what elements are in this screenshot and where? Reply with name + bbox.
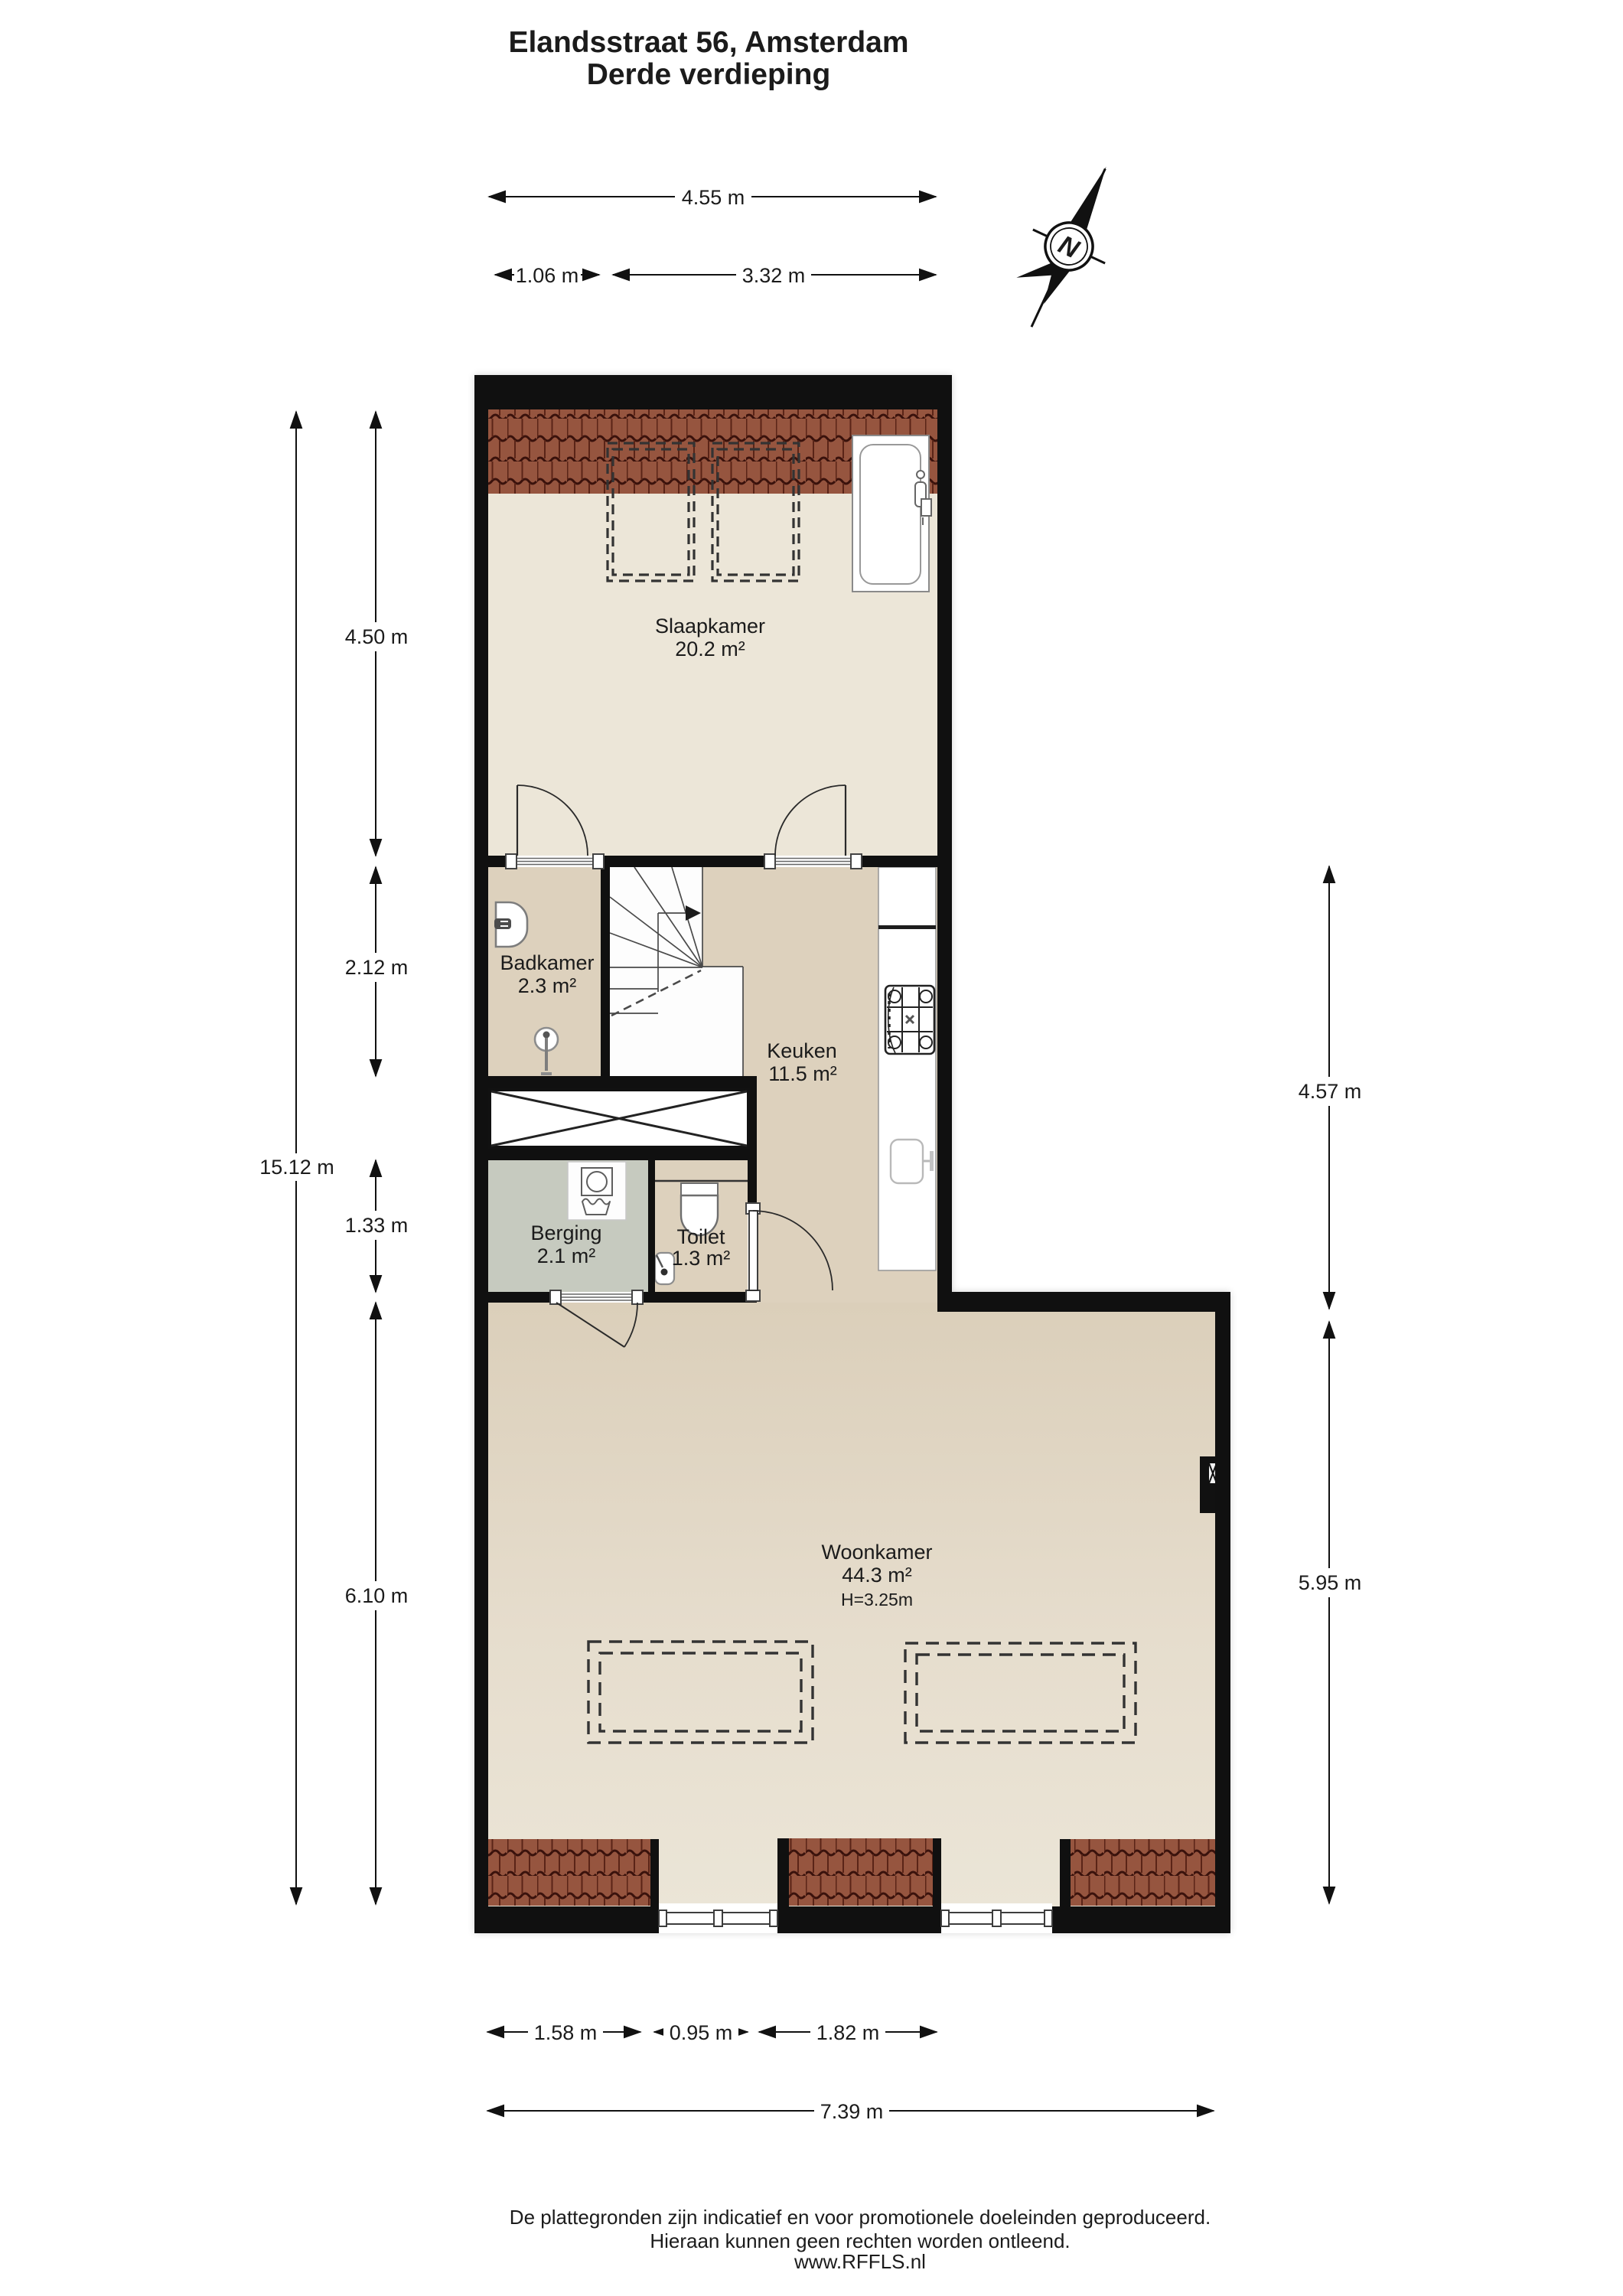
svg-text:44.3 m²: 44.3 m² (842, 1564, 912, 1587)
svg-text:Slaapkamer: Slaapkamer (655, 615, 765, 638)
svg-text:20.2 m²: 20.2 m² (675, 638, 745, 660)
svg-text:15.12 m: 15.12 m (259, 1156, 334, 1179)
svg-text:1.3 m²: 1.3 m² (672, 1247, 731, 1270)
svg-text:Berging: Berging (530, 1221, 601, 1244)
svg-text:1.06 m: 1.06 m (516, 264, 579, 287)
svg-text:Hieraan kunnen geen rechten wo: Hieraan kunnen geen rechten worden ontle… (650, 2229, 1070, 2252)
svg-text:De plattegronden zijn indicati: De plattegronden zijn indicatief en voor… (510, 2206, 1211, 2229)
svg-text:H=3.25m: H=3.25m (841, 1590, 913, 1609)
svg-text:5.95 m: 5.95 m (1299, 1571, 1362, 1594)
svg-text:7.39 m: 7.39 m (820, 2100, 884, 2123)
svg-text:1.82 m: 1.82 m (816, 2021, 880, 2044)
svg-text:3.32 m: 3.32 m (742, 264, 806, 287)
svg-text:1.33 m: 1.33 m (345, 1214, 409, 1237)
svg-text:Toilet: Toilet (676, 1225, 725, 1248)
svg-text:2.12 m: 2.12 m (345, 956, 409, 979)
svg-text:2.3 m²: 2.3 m² (518, 974, 577, 997)
svg-text:11.5 m²: 11.5 m² (768, 1062, 837, 1085)
svg-text:2.1 m²: 2.1 m² (537, 1244, 596, 1267)
svg-text:6.10 m: 6.10 m (345, 1584, 409, 1607)
svg-text:Woonkamer: Woonkamer (821, 1541, 932, 1564)
svg-text:4.55 m: 4.55 m (682, 186, 745, 209)
svg-text:Keuken: Keuken (767, 1039, 837, 1062)
svg-text:Derde verdieping: Derde verdieping (587, 58, 831, 91)
svg-text:www.RFFLS.nl: www.RFFLS.nl (794, 2250, 926, 2273)
svg-text:4.57 m: 4.57 m (1299, 1080, 1362, 1103)
svg-text:Badkamer: Badkamer (500, 951, 594, 974)
svg-text:Elandsstraat 56, Amsterdam: Elandsstraat 56, Amsterdam (508, 26, 908, 59)
svg-text:4.50 m: 4.50 m (345, 625, 409, 648)
svg-text:1.58 m: 1.58 m (534, 2021, 598, 2044)
svg-text:0.95 m: 0.95 m (670, 2021, 733, 2044)
